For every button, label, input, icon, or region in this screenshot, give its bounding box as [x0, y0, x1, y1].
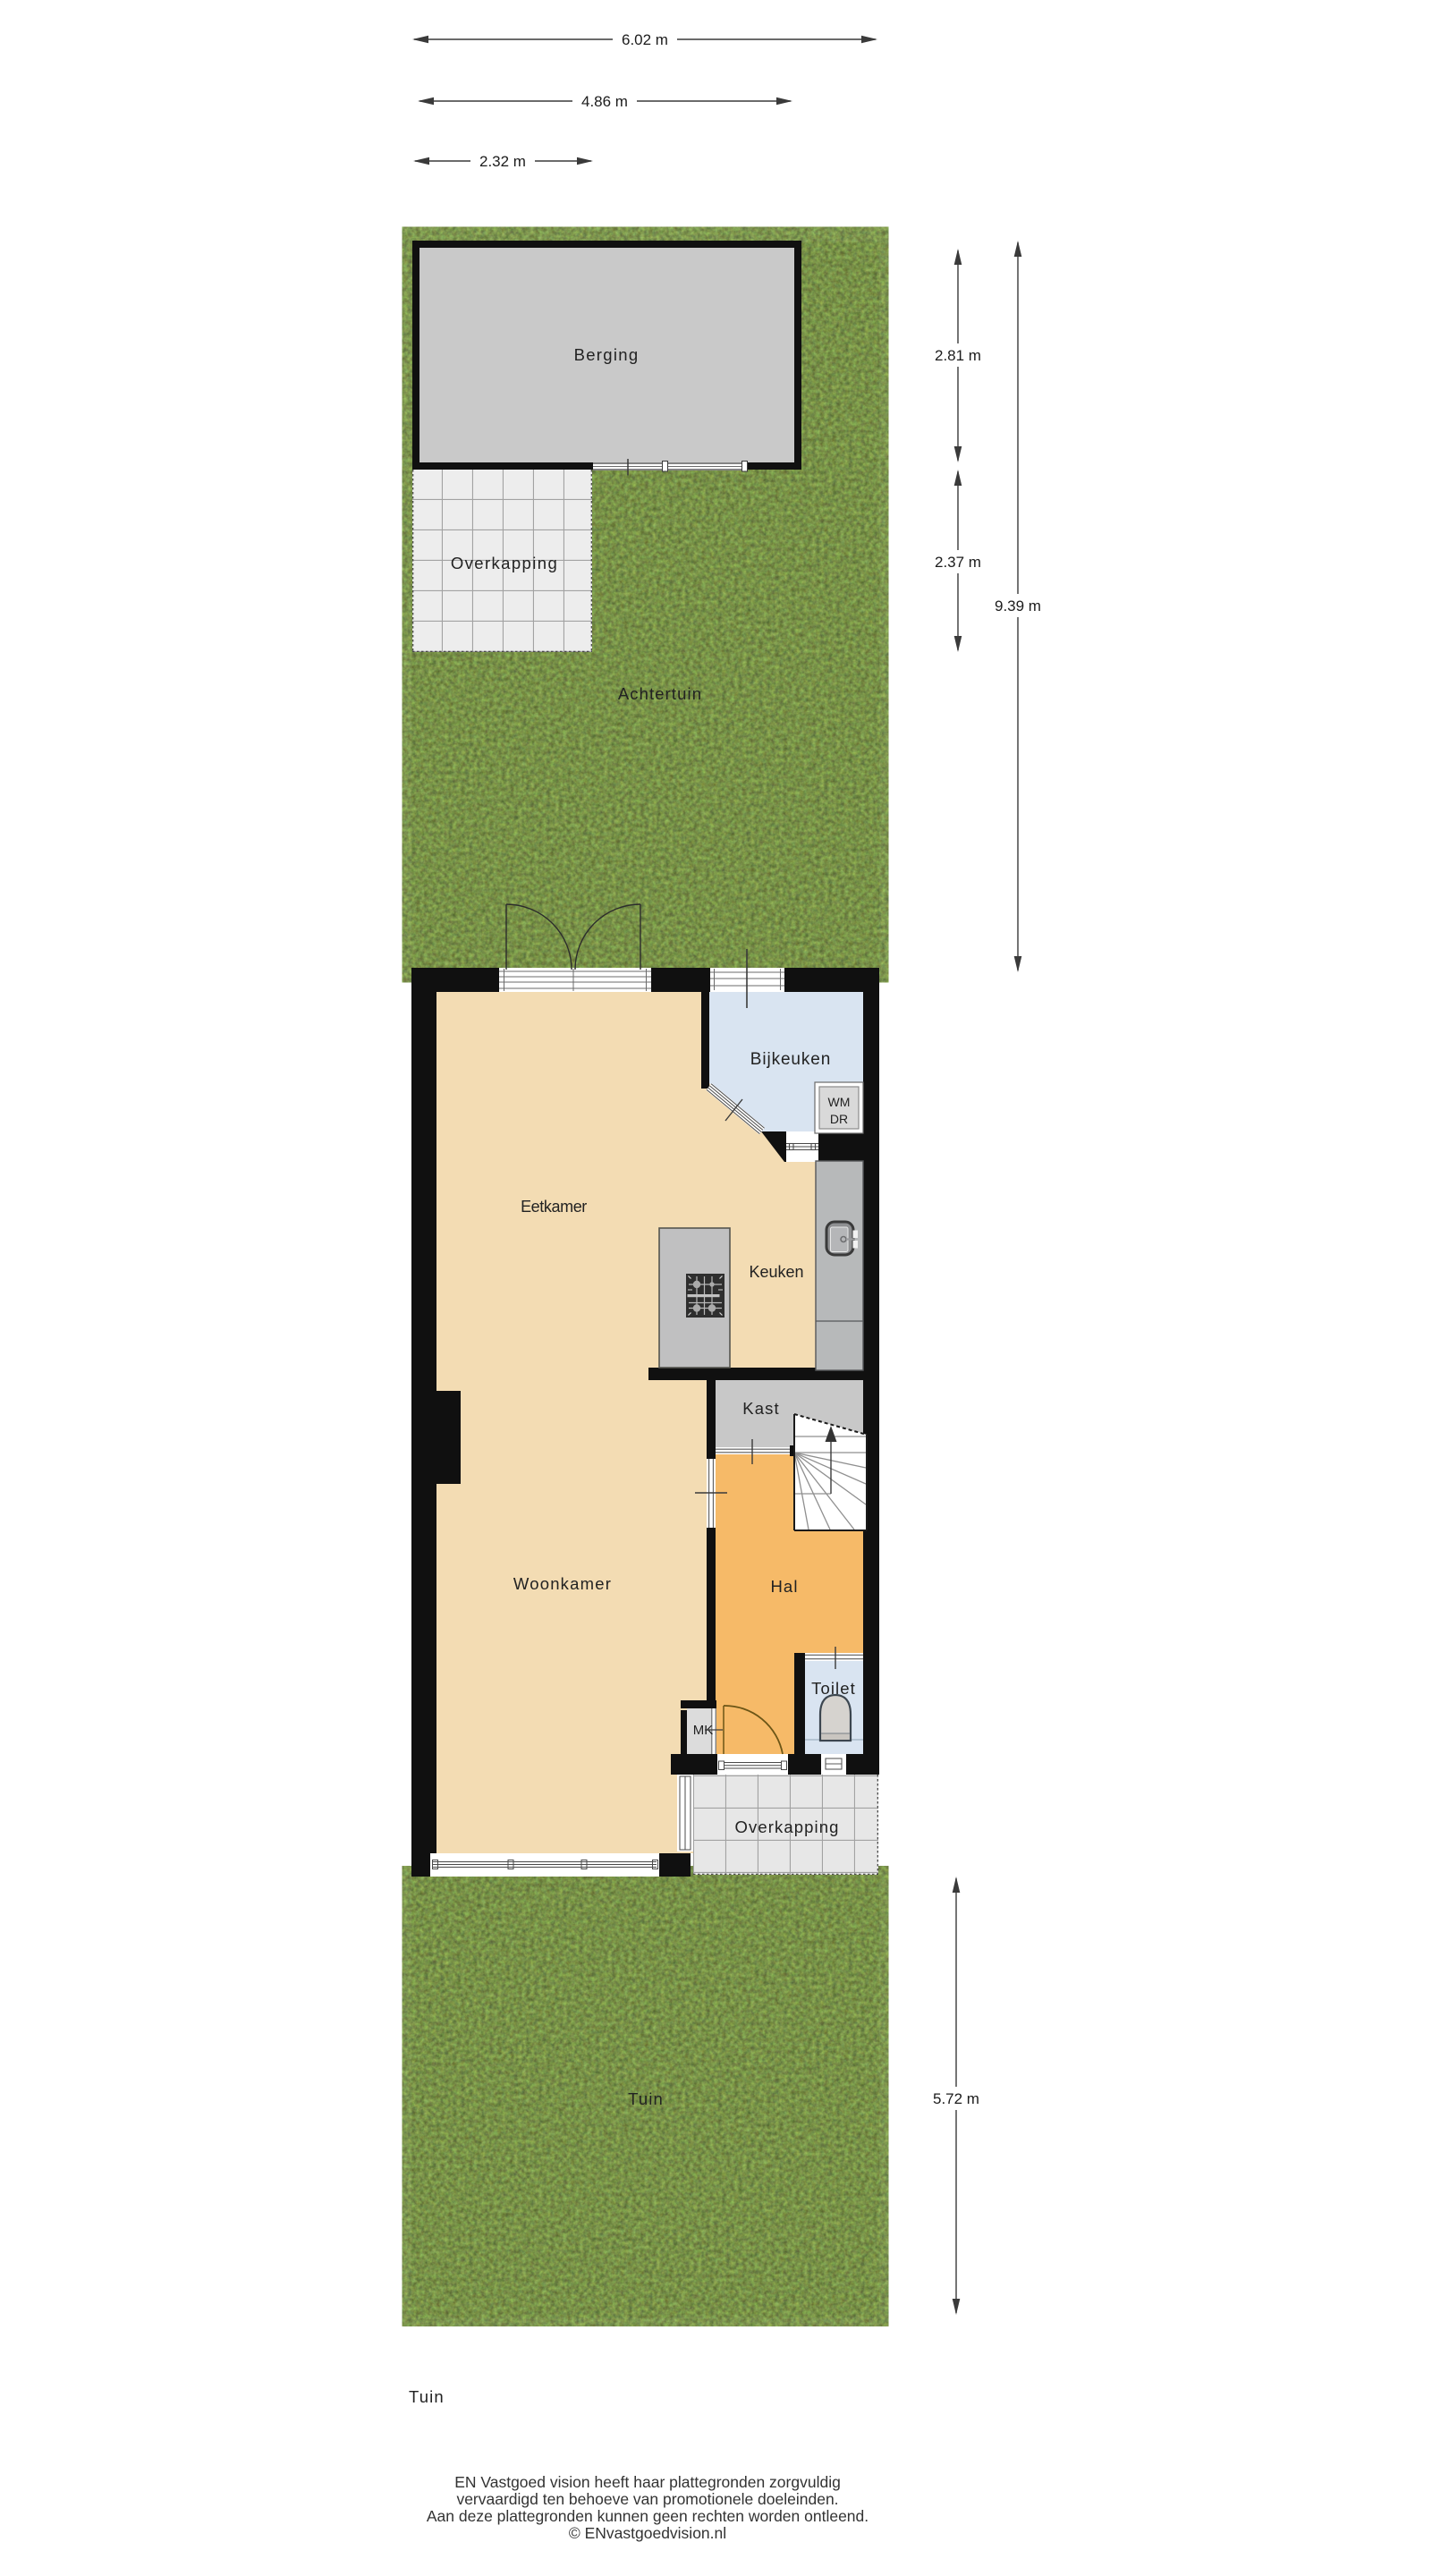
svg-text:Aan deze plattegronden kunnen: Aan deze plattegronden kunnen geen recht… — [427, 2507, 869, 2525]
svg-text:Overkapping: Overkapping — [735, 1818, 840, 1836]
svg-text:2.32 m: 2.32 m — [479, 153, 526, 170]
svg-text:5.72 m: 5.72 m — [933, 2090, 979, 2107]
svg-text:6.02 m: 6.02 m — [622, 31, 668, 48]
svg-text:Berging: Berging — [574, 345, 640, 364]
svg-text:Tuin: Tuin — [628, 2089, 664, 2108]
svg-text:Woonkamer: Woonkamer — [513, 1574, 612, 1593]
svg-text:Bijkeuken: Bijkeuken — [750, 1050, 831, 1069]
svg-text:DR: DR — [830, 1112, 848, 1126]
svg-text:Kast: Kast — [742, 1399, 779, 1418]
svg-text:EN Vastgoed vision heeft haar: EN Vastgoed vision heeft haar plattegron… — [454, 2473, 841, 2491]
svg-text:Keuken: Keuken — [749, 1263, 803, 1281]
svg-text:2.81 m: 2.81 m — [935, 347, 981, 364]
svg-text:Tuin: Tuin — [409, 2387, 445, 2406]
svg-text:Eetkamer: Eetkamer — [521, 1198, 587, 1216]
svg-text:Toilet: Toilet — [811, 1679, 856, 1698]
svg-text:Achtertuin: Achtertuin — [618, 684, 702, 703]
svg-text:WM: WM — [828, 1095, 851, 1109]
svg-text:Overkapping: Overkapping — [451, 554, 558, 572]
svg-text:Hal: Hal — [770, 1577, 798, 1596]
svg-text:vervaardigd ten behoeve van pr: vervaardigd ten behoeve van promotionele… — [456, 2490, 838, 2508]
svg-text:2.37 m: 2.37 m — [935, 554, 981, 571]
svg-text:© ENvastgoedvision.nl: © ENvastgoedvision.nl — [569, 2524, 726, 2542]
svg-text:9.39 m: 9.39 m — [995, 597, 1041, 614]
svg-text:4.86 m: 4.86 m — [581, 93, 628, 110]
